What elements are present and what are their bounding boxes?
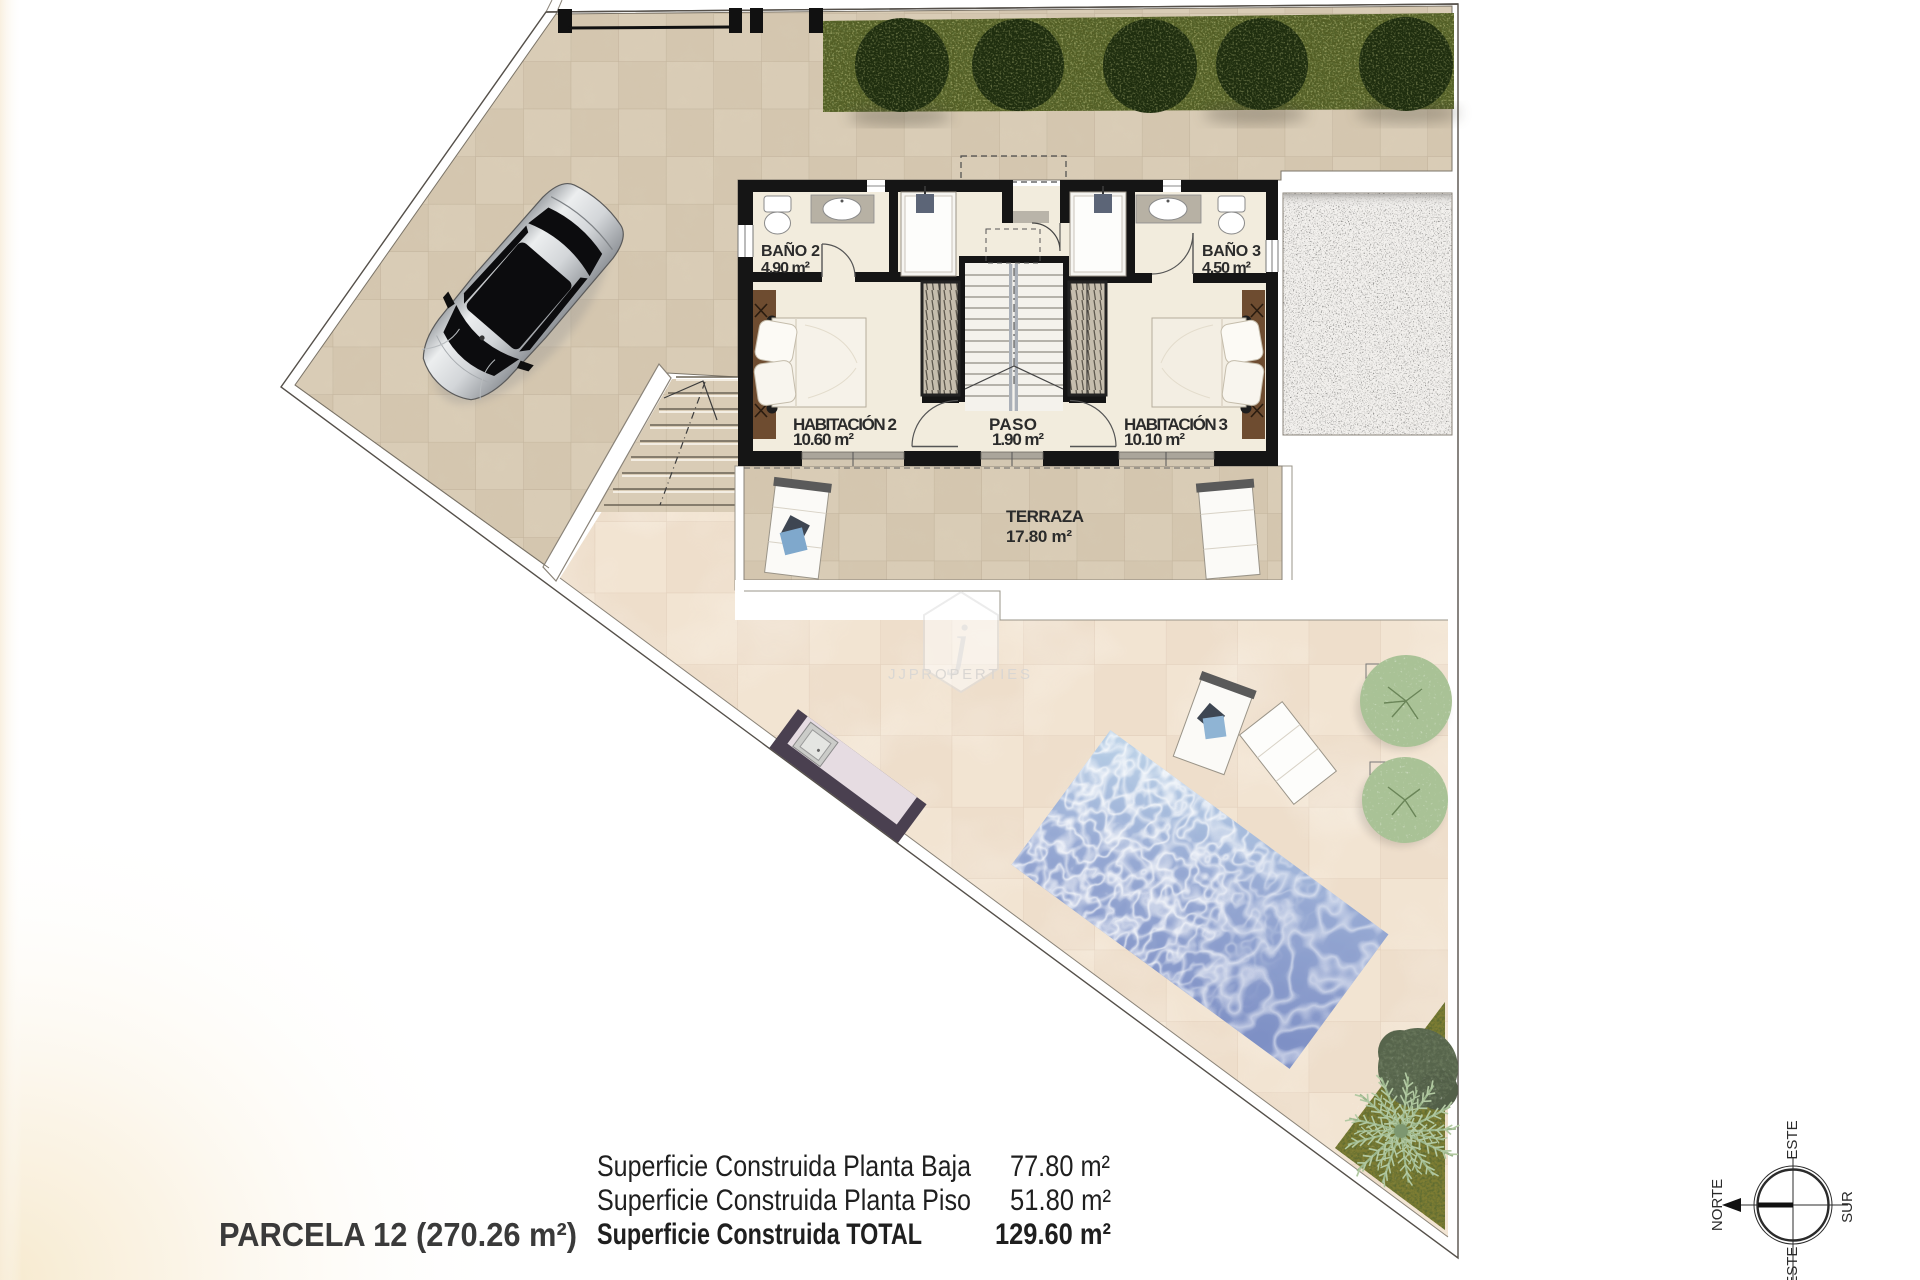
svg-text:4.50 m²: 4.50 m²	[1202, 260, 1251, 277]
svg-text:OESTE: OESTE	[1784, 1247, 1801, 1280]
svg-text:17.80 m²: 17.80 m²	[1006, 527, 1072, 546]
svg-text:TERRAZA: TERRAZA	[1006, 507, 1084, 526]
svg-text:SUR: SUR	[1839, 1191, 1856, 1223]
svg-text:NORTE: NORTE	[1709, 1179, 1726, 1231]
svg-text:4.90 m²: 4.90 m²	[761, 260, 810, 277]
svg-text:77.80 m²: 77.80 m²	[1010, 1150, 1110, 1183]
svg-text:129.60 m²: 129.60 m²	[995, 1218, 1111, 1251]
svg-text:1.90 m²: 1.90 m²	[992, 430, 1044, 449]
svg-text:Superficie Construida Planta B: Superficie Construida Planta Baja	[597, 1150, 971, 1183]
svg-text:10.60 m²: 10.60 m²	[793, 430, 854, 449]
svg-text:J J P R O P E R T I E S: J J P R O P E R T I E S	[888, 666, 1030, 683]
svg-text:BAÑO 2: BAÑO 2	[761, 240, 820, 260]
svg-text:ESTE: ESTE	[1784, 1120, 1801, 1159]
svg-text:PARCELA 12 (270.26 m²): PARCELA 12 (270.26 m²)	[219, 1216, 577, 1253]
svg-text:BAÑO 3: BAÑO 3	[1202, 240, 1261, 260]
svg-text:51.80 m²: 51.80 m²	[1010, 1184, 1111, 1217]
svg-text:10.10 m²: 10.10 m²	[1124, 430, 1185, 449]
svg-text:Superficie Construida TOTAL: Superficie Construida TOTAL	[597, 1218, 922, 1251]
svg-text:Superficie Construida Planta P: Superficie Construida Planta Piso	[597, 1184, 971, 1217]
